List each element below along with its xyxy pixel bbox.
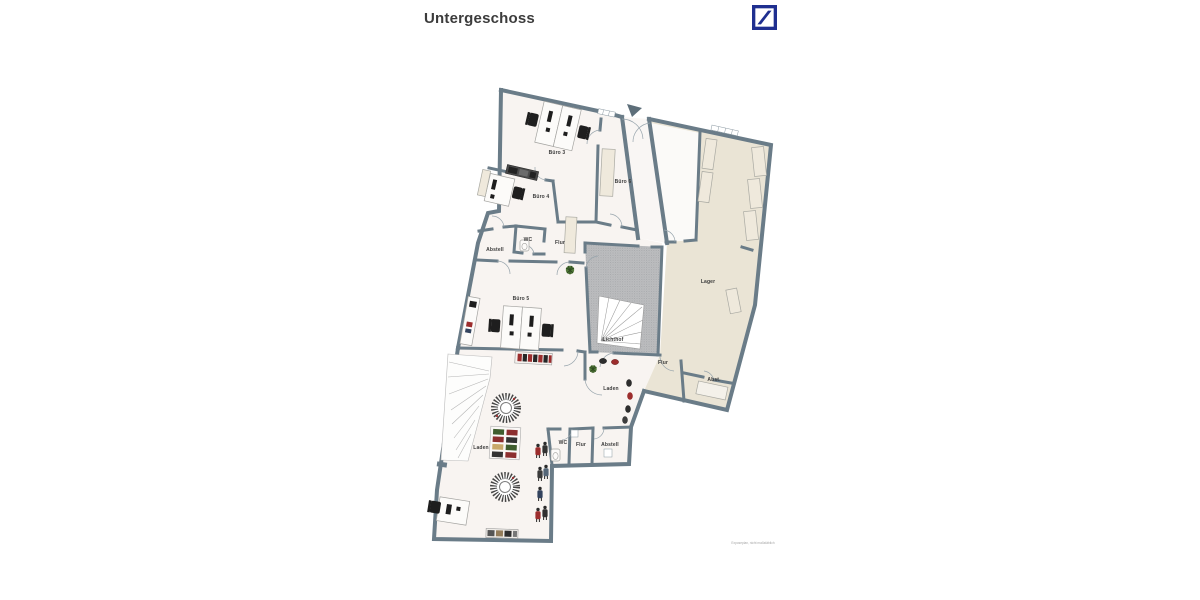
toilet-icon-wc-shop	[551, 449, 560, 461]
shaft-marker-1	[571, 430, 578, 437]
footer-note: Exposeplan, nicht maßstäblich	[731, 541, 774, 545]
spiral-rack-icon-1	[495, 397, 518, 420]
room-label-flur-right: Flur	[658, 360, 668, 366]
room-label-abstell-shop: Abstell	[601, 442, 619, 448]
room-label-lager: Lager	[701, 279, 715, 285]
room-label-buero-5: Büro 5	[513, 296, 530, 302]
shelf-icon-shop-bottom	[486, 528, 518, 538]
room-label-laden-main: Laden	[473, 445, 488, 451]
room-label-wc-shop: WC	[559, 440, 568, 446]
closet-icon-flur	[564, 217, 577, 254]
room-label-flur-shop: Flur	[576, 442, 586, 448]
page: { "page": { "title": "Untergeschoss", "f…	[0, 0, 1200, 600]
rack-icon-red-shelf	[515, 352, 553, 365]
shaft-marker-2	[604, 449, 612, 457]
room-label-flur-og: Flur	[555, 240, 565, 246]
room-label-buero-4: Büro 4	[533, 194, 550, 200]
room-label-laden-upper: Laden	[603, 386, 618, 392]
room-label-lichthof: Lichthof	[603, 337, 624, 343]
room-label-abst-right: Abst.	[707, 377, 721, 383]
display-shelf-icon-shop	[489, 426, 521, 460]
floor-plan: Büro 3 Büro 4 Büro 6 WC Flur Abstell Bür…	[0, 0, 1200, 600]
closet-icon-buero6	[600, 149, 615, 197]
room-label-buero-6: Büro 6	[615, 179, 632, 185]
entrance-arrow-icon	[627, 104, 642, 117]
room-label-buero-3: Büro 3	[549, 150, 566, 156]
room-label-abstell-og: Abstell	[486, 247, 504, 253]
room-label-wc-og: WC	[524, 237, 533, 243]
spiral-rack-icon-2	[494, 476, 517, 499]
